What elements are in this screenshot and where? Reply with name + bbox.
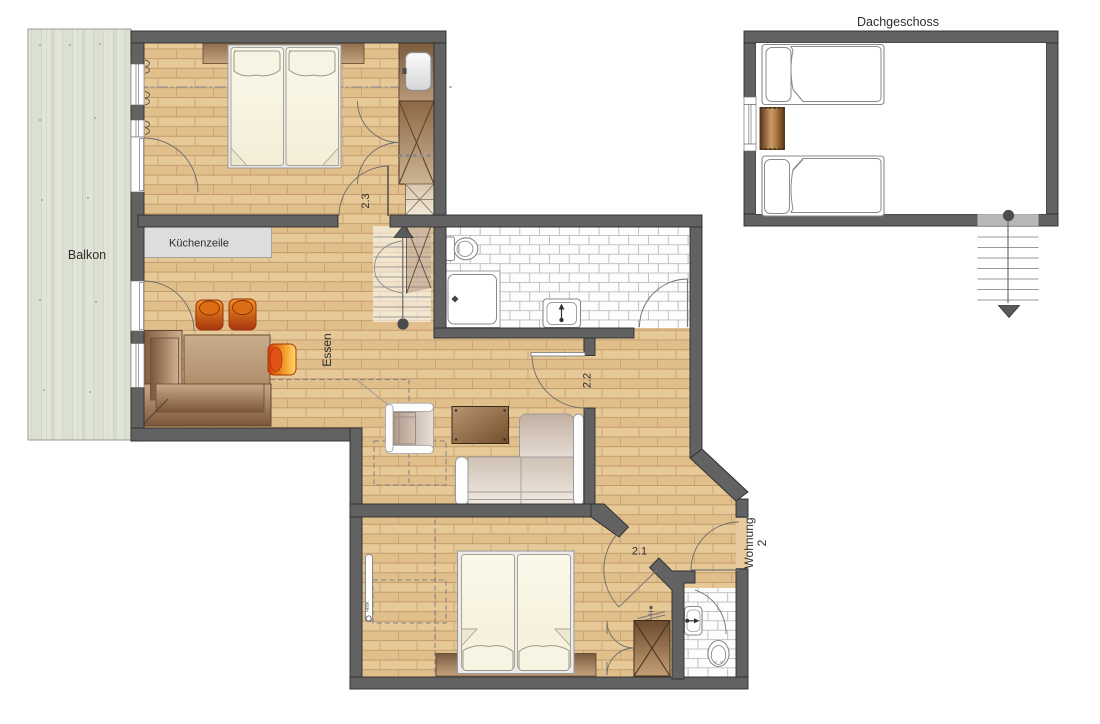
svg-text:HEIZK.: HEIZK. [366,600,370,612]
svg-text:2.3: 2.3 [360,193,372,208]
svg-text:2: 2 [755,539,769,546]
svg-text:Küchenzeile: Küchenzeile [169,238,229,250]
svg-text:2.2: 2.2 [582,373,594,388]
svg-text:Balkon: Balkon [68,248,106,262]
svg-text:Dachgeschoss: Dachgeschoss [857,15,939,29]
svg-text:Essen: Essen [320,333,334,366]
svg-text:Wohnung: Wohnung [742,517,756,568]
svg-text:2.1: 2.1 [632,546,647,558]
